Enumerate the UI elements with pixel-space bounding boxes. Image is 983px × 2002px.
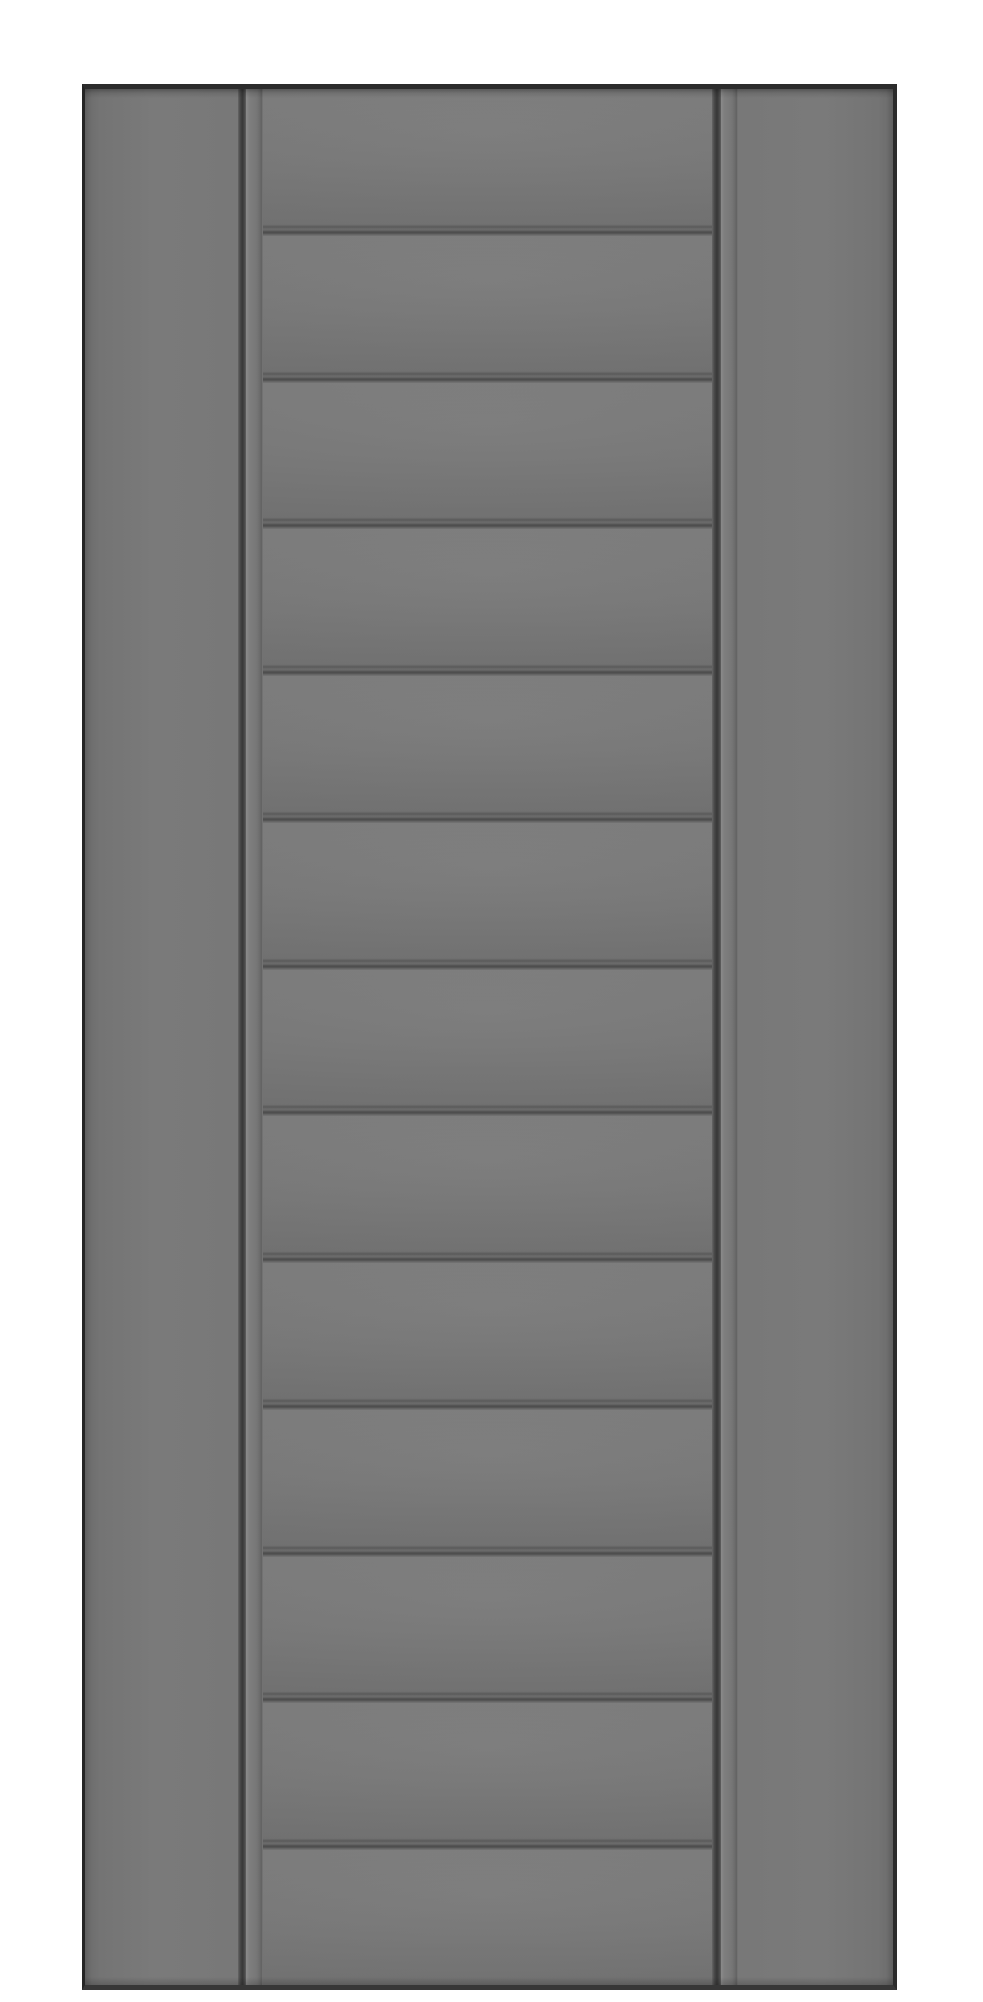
- door-left-vertical-groove: [238, 89, 246, 1985]
- door-right-strip: [721, 89, 738, 1985]
- door-horizontal-groove: [263, 371, 712, 383]
- door-panel: [263, 676, 712, 811]
- door-panel: [263, 89, 712, 224]
- door-horizontal-groove: [263, 1398, 712, 1410]
- door-panel: [263, 1703, 712, 1838]
- door-panel: [263, 1850, 712, 1985]
- door-panel: [263, 1557, 712, 1692]
- door-left-stile: [85, 89, 238, 1985]
- door-panel: [263, 383, 712, 518]
- door-horizontal-groove: [263, 1545, 712, 1557]
- door-horizontal-groove: [263, 958, 712, 970]
- door-panel: [263, 236, 712, 371]
- door-panel: [263, 1263, 712, 1398]
- door-horizontal-groove: [263, 1838, 712, 1850]
- door-horizontal-groove: [263, 1251, 712, 1263]
- door-horizontal-groove: [263, 811, 712, 823]
- door: [82, 84, 897, 1990]
- door-panel: [263, 970, 712, 1105]
- door-right-stile: [738, 89, 893, 1985]
- door-horizontal-groove: [263, 664, 712, 676]
- door-right-vertical-groove: [712, 89, 721, 1985]
- door-horizontal-groove: [263, 224, 712, 236]
- door-panel: [263, 1116, 712, 1251]
- door-panel: [263, 1410, 712, 1545]
- door-horizontal-groove: [263, 517, 712, 529]
- door-center-panels: [263, 89, 712, 1985]
- door-horizontal-groove: [263, 1691, 712, 1703]
- door-left-strip: [246, 89, 263, 1985]
- page-background: [0, 0, 983, 2002]
- door-panel: [263, 823, 712, 958]
- door-panel: [263, 529, 712, 664]
- door-horizontal-groove: [263, 1104, 712, 1116]
